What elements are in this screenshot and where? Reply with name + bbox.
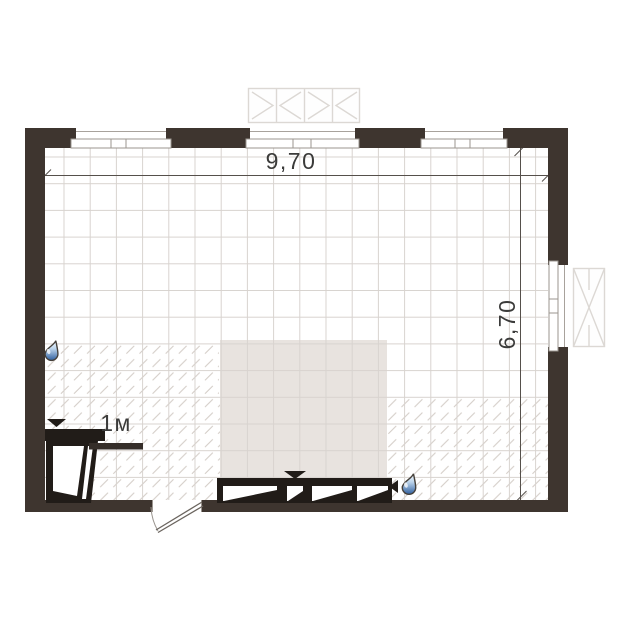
floor-plan: 9,70 6,70 1м (0, 0, 632, 632)
dimension-height-label: 6,70 (495, 295, 519, 353)
window-top-left (71, 128, 171, 148)
dimension-width-label: 9,70 (261, 149, 321, 173)
radiator-symbol-icon (574, 269, 605, 347)
window-top-right (421, 128, 507, 148)
wall-left (25, 128, 45, 512)
floor-plan-drawing (0, 0, 632, 632)
window-opening-symbol-icon (249, 89, 360, 123)
scale-label: 1м (93, 411, 139, 435)
door (151, 500, 203, 533)
window-top-center (246, 128, 359, 148)
window-right (548, 261, 568, 351)
scale-bar (89, 443, 143, 450)
